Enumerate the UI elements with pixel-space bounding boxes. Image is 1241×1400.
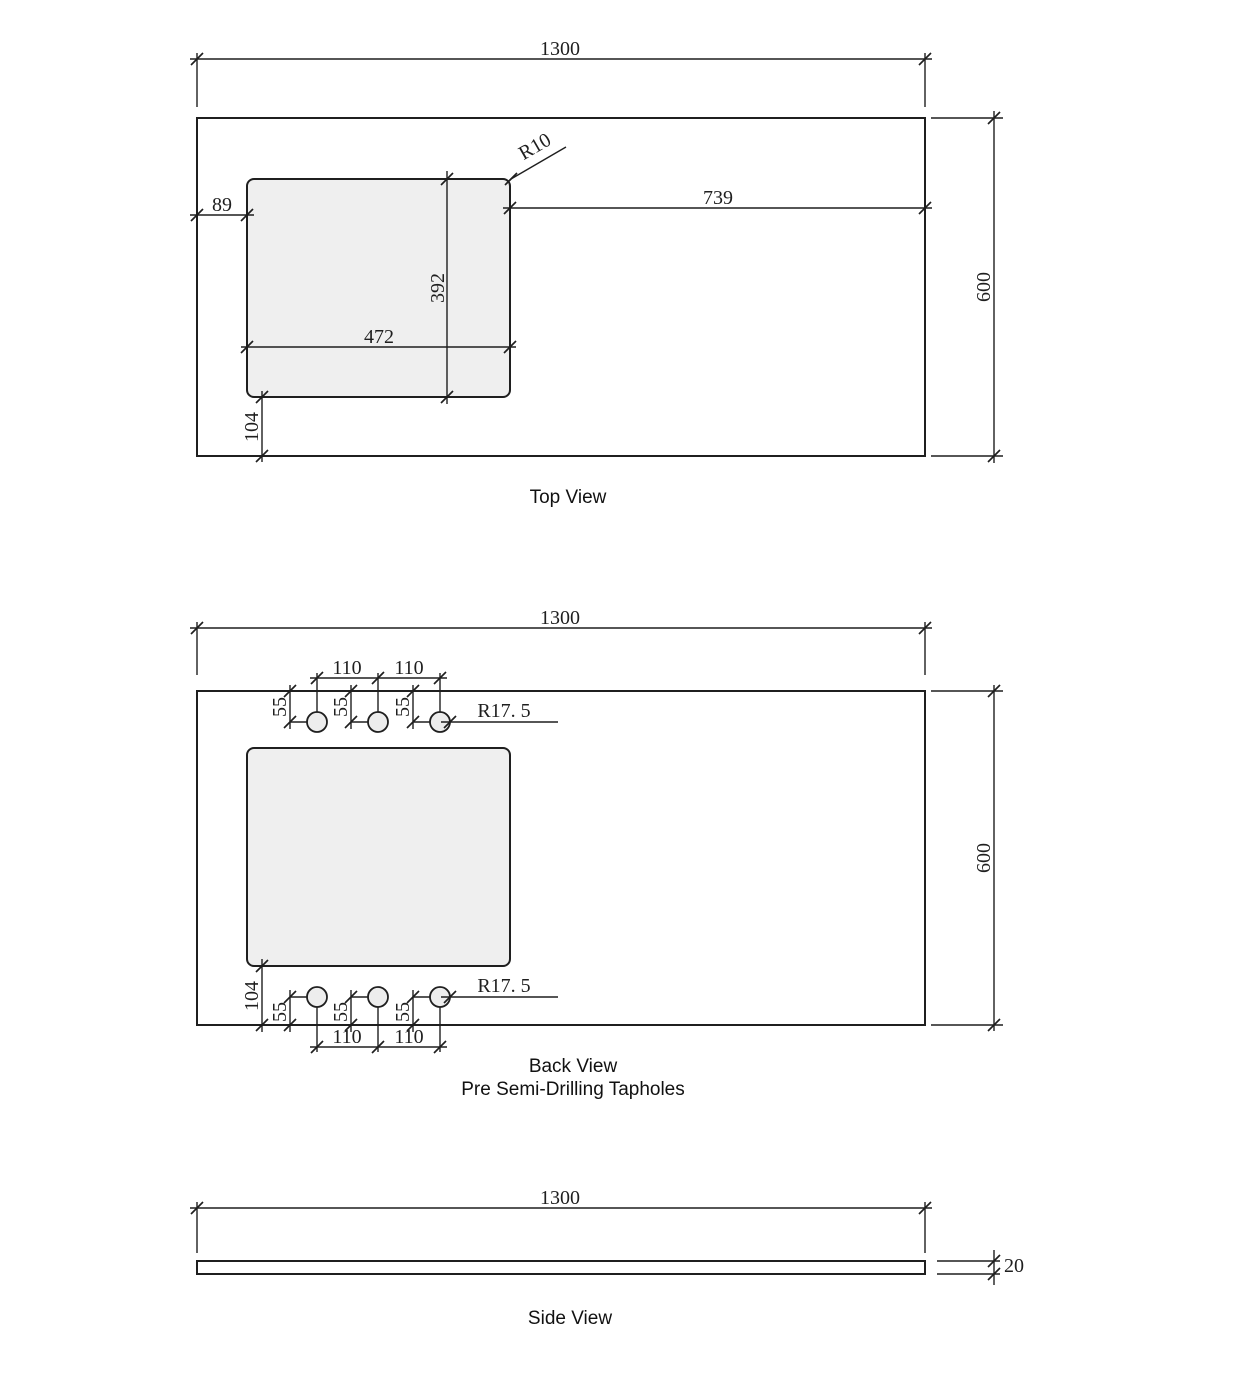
taphole-top-2 xyxy=(368,712,388,732)
dim-overall-depth-back: 600 xyxy=(931,685,1003,1031)
side-view-label: Side View xyxy=(528,1308,612,1329)
dim-overall-width-side: 1300 xyxy=(190,1187,932,1253)
drawing-canvas: 1300 89 739 392 472 xyxy=(0,0,1241,1400)
dim-label-cutout-bottom-offset: 104 xyxy=(241,981,263,1011)
dim-label-cutout-left-offset: 89 xyxy=(212,194,232,216)
sink-cutout-top xyxy=(247,179,510,397)
back-view-label: Back View xyxy=(529,1056,618,1077)
dim-overall-depth-top: 600 xyxy=(931,111,1003,463)
taphole-bottom-1 xyxy=(307,987,327,1007)
dim-thickness: 20 xyxy=(937,1250,1024,1285)
top-view: 1300 89 739 392 472 xyxy=(190,38,1003,508)
dim-overall-width-top: 1300 xyxy=(190,38,932,107)
dim-label-taphole-edge-offset: 55 xyxy=(330,1002,352,1022)
dim-label-cutout-depth: 392 xyxy=(427,273,449,303)
dim-label-overall-width: 1300 xyxy=(540,38,580,60)
benchtop-outline-side xyxy=(197,1261,925,1274)
dim-label-taphole-edge-offset: 55 xyxy=(392,697,414,717)
back-view: 1300 110 110 55 xyxy=(190,607,1003,1100)
drawing-page: 1300 89 739 392 472 xyxy=(0,0,1241,1400)
dim-label-taphole-spacing: 110 xyxy=(332,657,361,679)
top-view-label: Top View xyxy=(530,487,607,508)
dim-label-taphole-spacing: 110 xyxy=(394,1026,423,1048)
back-view-sublabel: Pre Semi-Drilling Tapholes xyxy=(461,1079,685,1100)
dim-label-taphole-edge-offset: 55 xyxy=(330,697,352,717)
sink-cutout-back xyxy=(247,748,510,966)
dim-label-overall-width: 1300 xyxy=(540,1187,580,1209)
dim-label-taphole-radius: R17. 5 xyxy=(477,975,530,997)
dim-overall-width-back: 1300 xyxy=(190,607,932,675)
dim-label-thickness: 20 xyxy=(1004,1255,1024,1277)
dim-label-taphole-radius: R17. 5 xyxy=(477,700,530,722)
dim-label-overall-width: 1300 xyxy=(540,607,580,629)
dim-label-cutout-bottom-offset: 104 xyxy=(241,412,263,442)
taphole-bottom-2 xyxy=(368,987,388,1007)
dim-label-cutout-width: 472 xyxy=(364,326,394,348)
side-view: 1300 20 Side View xyxy=(190,1187,1024,1329)
dim-label-taphole-edge-offset: 55 xyxy=(269,697,291,717)
dim-label-taphole-edge-offset: 55 xyxy=(269,1002,291,1022)
dim-label-overall-depth: 600 xyxy=(973,843,995,873)
taphole-top-1 xyxy=(307,712,327,732)
dim-label-taphole-spacing: 110 xyxy=(332,1026,361,1048)
dim-label-taphole-spacing: 110 xyxy=(394,657,423,679)
dim-label-cutout-right-offset: 739 xyxy=(703,187,733,209)
dim-label-taphole-edge-offset: 55 xyxy=(392,1002,414,1022)
dim-label-overall-depth: 600 xyxy=(973,272,995,302)
